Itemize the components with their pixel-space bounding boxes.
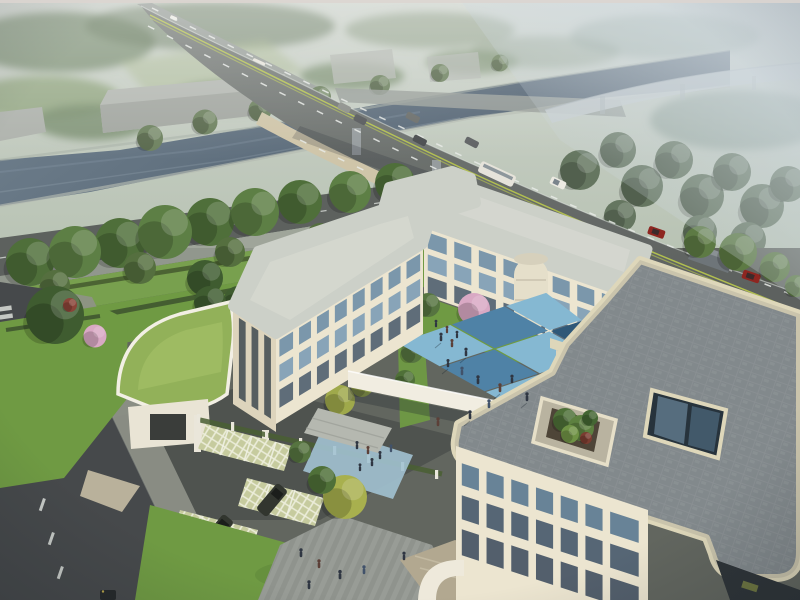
rendering-scene [0, 0, 800, 600]
architectural-rendering [0, 0, 800, 600]
atmosphere [0, 0, 800, 600]
top-border [0, 0, 800, 3]
